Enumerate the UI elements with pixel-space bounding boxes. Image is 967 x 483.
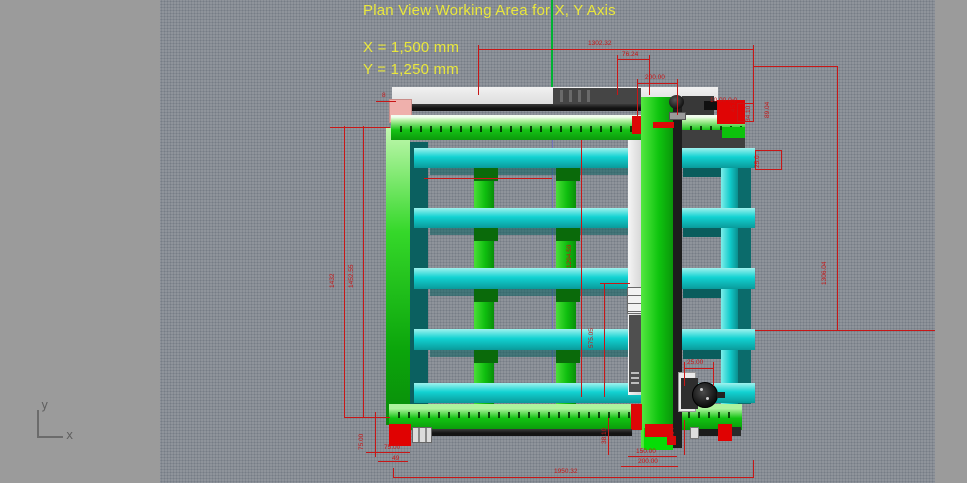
- axis-gizmo-x-line: [37, 436, 63, 438]
- dimension-label: 40.64: [669, 428, 677, 444]
- cad-window: 1302.3276.24200.0010.00 0.045.034.1089.0…: [0, 0, 967, 483]
- axis-gizmo-x-label: x: [66, 428, 73, 442]
- dimension-label: 25.00: [687, 359, 703, 367]
- dimension-label: 1950.32: [554, 468, 578, 476]
- dimension-label: 89.04: [764, 102, 772, 118]
- dimension-label: 49: [392, 455, 399, 463]
- dimension-label: 34.10: [745, 106, 753, 122]
- dimension-label: 200.00: [645, 74, 665, 82]
- dimension-label: 45.0: [730, 99, 738, 112]
- dimension-labels: 1302.3276.24200.0010.00 0.045.034.1089.0…: [0, 0, 967, 483]
- working-area-x-label: X = 1,500 mm: [363, 39, 459, 56]
- dimension-label: 200.00: [638, 458, 658, 466]
- dimension-label: 8: [382, 92, 386, 100]
- dimension-label: 75.00: [384, 444, 400, 452]
- dimension-label: 75.00: [358, 434, 366, 450]
- dimension-label: 150.00: [636, 448, 656, 456]
- dimension-label: 25.0: [754, 155, 762, 168]
- dimension-label: 1452.55: [348, 265, 356, 289]
- dimension-label: 1302.32: [588, 40, 612, 48]
- axis-gizmo-y-line: [37, 410, 39, 438]
- dimension-label: 76.24: [622, 51, 638, 59]
- viewport-title: Plan View Working Area for X, Y Axis: [363, 2, 616, 19]
- working-area-y-label: Y = 1,250 mm: [363, 61, 459, 78]
- axis-gizmo-y-label: y: [41, 398, 48, 412]
- dimension-label: 38.10: [601, 428, 609, 444]
- dimension-label: 575.05: [588, 328, 596, 348]
- dimension-label: 1432: [329, 274, 337, 288]
- dimension-label: 1294.59: [566, 245, 574, 269]
- dimension-label: 1306.04: [821, 262, 829, 286]
